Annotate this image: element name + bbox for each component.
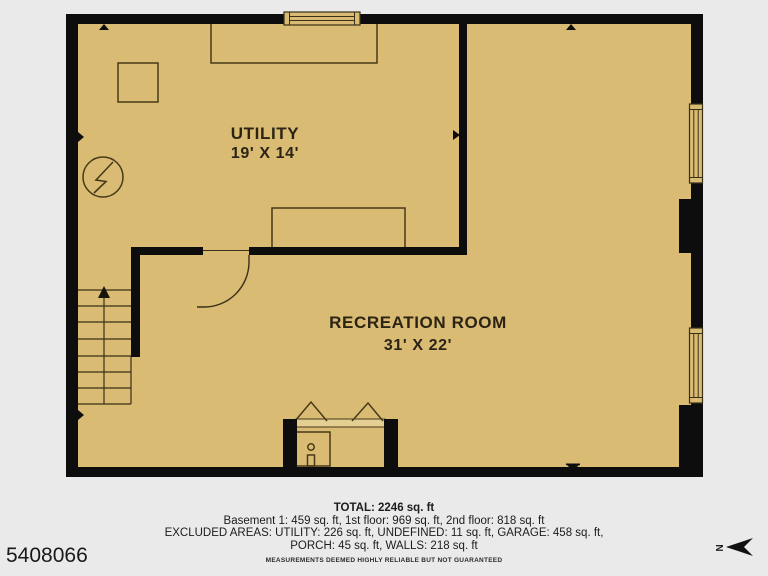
wall-right [691, 14, 703, 477]
room-dims-recreation: 31' X 22' [318, 337, 518, 355]
chimney [679, 199, 692, 253]
listing-id: 5408066 [6, 544, 88, 568]
wall-interior-vertical [459, 24, 467, 255]
total-area-text: TOTAL: 2246 sq. ft [0, 502, 768, 514]
room-label-recreation: RECREATION ROOM [318, 313, 518, 333]
wall-interior-horizontal-left [131, 247, 203, 255]
disclaimer-text: MEASUREMENTS DEEMED HIGHLY RELIABLE BUT … [0, 557, 768, 564]
wall-corner-thick [679, 405, 692, 467]
room-label-utility: UTILITY [185, 124, 345, 144]
excluded-areas-text: EXCLUDED AREAS: UTILITY: 226 sq. ft, UND… [0, 527, 768, 539]
closet-header [296, 419, 385, 427]
wall-top [66, 14, 703, 24]
wall-left [66, 14, 78, 477]
right-window-upper-icon [690, 104, 703, 183]
wall-bottom [66, 467, 703, 477]
floorplan-drawing: N [0, 0, 768, 576]
closet-wall-right [384, 419, 398, 467]
right-window-lower-icon [690, 328, 703, 403]
excluded-areas-text-2: PORCH: 45 sq. ft, WALLS: 218 sq. ft [0, 540, 768, 552]
wall-interior-horizontal-right [249, 247, 467, 255]
floor-area [78, 24, 691, 467]
closet-wall-left [283, 419, 297, 467]
floorplan-image: N UTILITY 19' X 14' RECREATION ROOM 31' … [0, 0, 768, 576]
floor-areas-text: Basement 1: 459 sq. ft, 1st floor: 969 s… [0, 515, 768, 527]
top-window-icon [284, 12, 360, 25]
room-dims-utility: 19' X 14' [185, 145, 345, 163]
wall-stair [131, 247, 140, 357]
